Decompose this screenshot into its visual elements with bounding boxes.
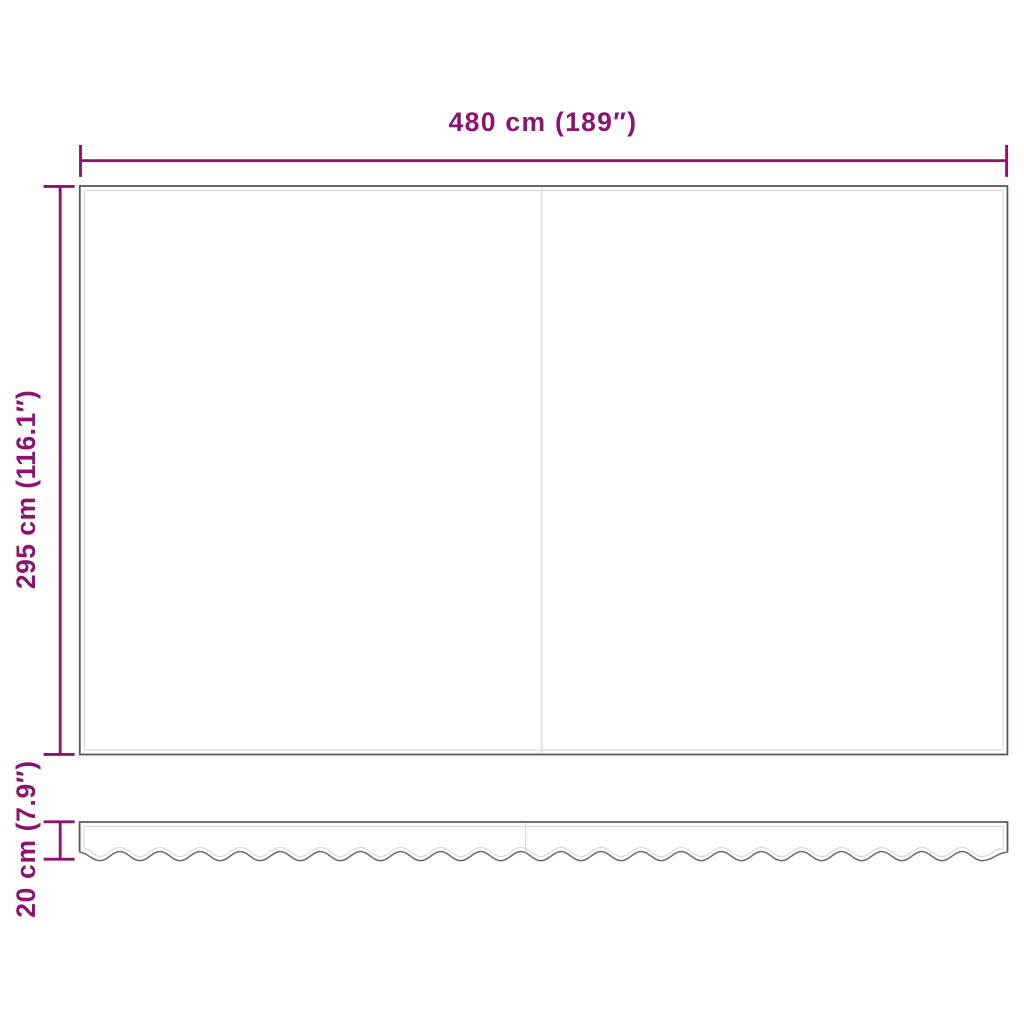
svg-text:295 cm (116.1″): 295 cm (116.1″): [11, 390, 41, 589]
svg-text:20 cm (7.9″): 20 cm (7.9″): [11, 760, 41, 917]
svg-text:480 cm (189″): 480 cm (189″): [449, 107, 638, 137]
